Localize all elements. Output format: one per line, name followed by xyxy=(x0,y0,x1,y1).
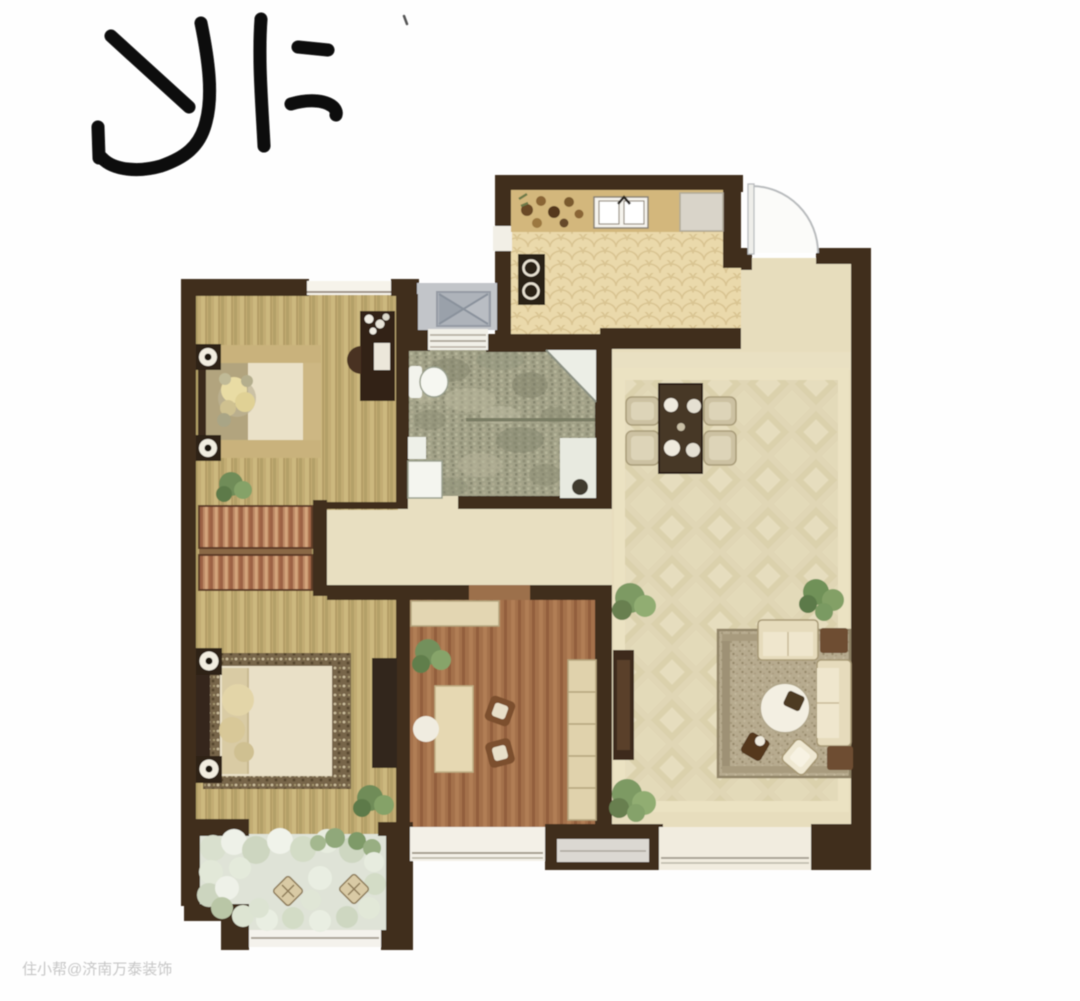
svg-text:住小帮@济南万泰装饰: 住小帮@济南万泰装饰 xyxy=(22,961,172,978)
